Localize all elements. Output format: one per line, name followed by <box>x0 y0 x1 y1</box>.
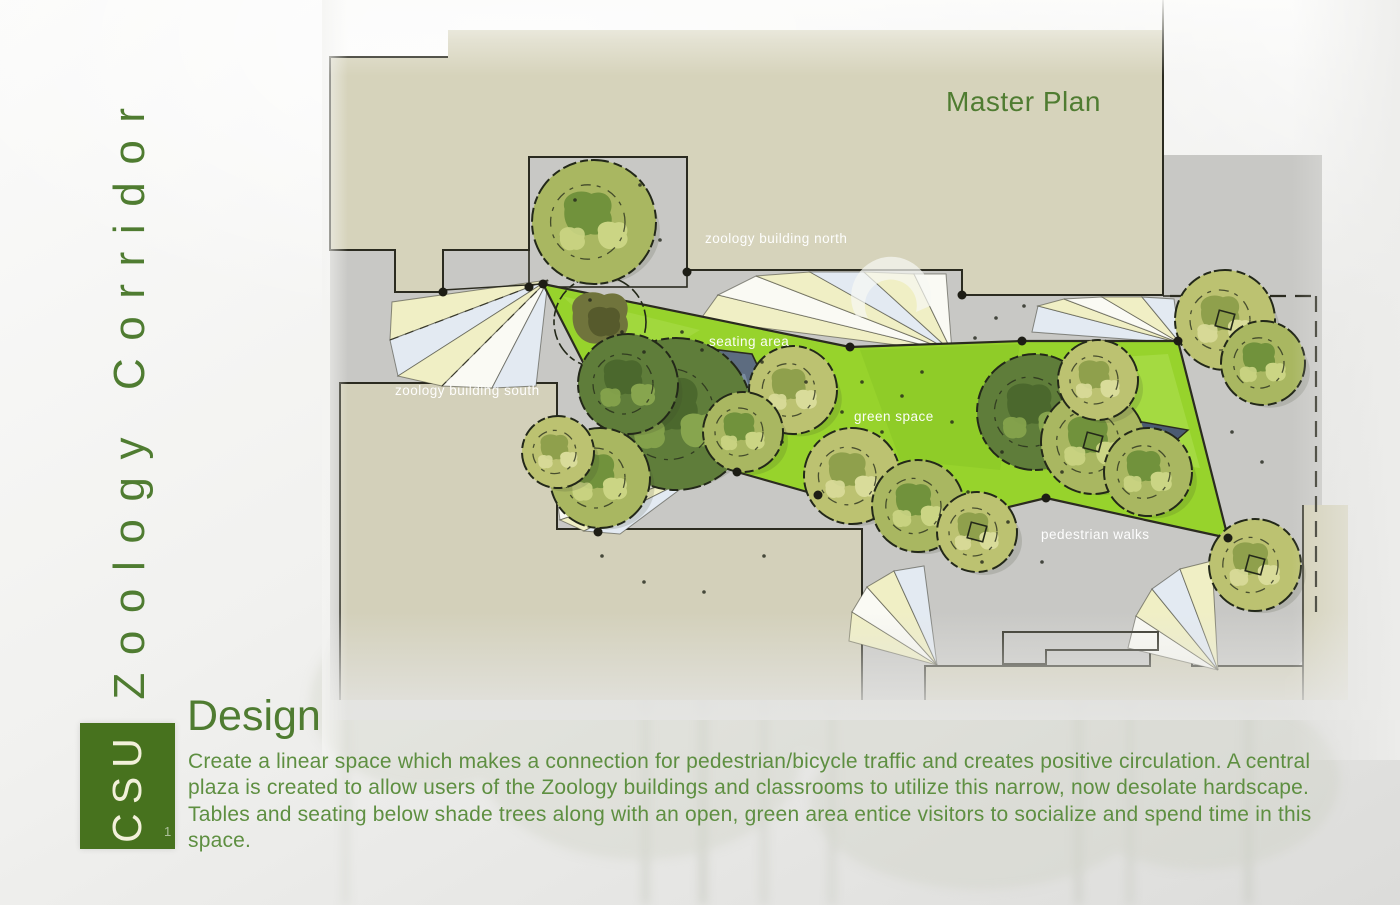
label-zoology-building-south: zoology building south <box>395 383 540 398</box>
label-green-space: green space <box>854 409 934 424</box>
label-zoology-building-north: zoology building north <box>705 231 847 246</box>
label-seating-area: seating area <box>709 334 789 349</box>
csu-logo-text: CSU <box>97 721 157 851</box>
design-section-paragraph: Create a linear space which makes a conn… <box>188 749 1363 854</box>
presentation-board: zoology building north seating area zool… <box>0 0 1400 905</box>
label-pedestrian-walks: pedestrian walks <box>1041 527 1150 542</box>
page-number: 1 <box>164 824 171 839</box>
plan-title: Master Plan <box>946 86 1101 118</box>
vertical-project-title: Zoology Corridor <box>100 30 160 760</box>
design-section-heading: Design <box>187 692 321 741</box>
